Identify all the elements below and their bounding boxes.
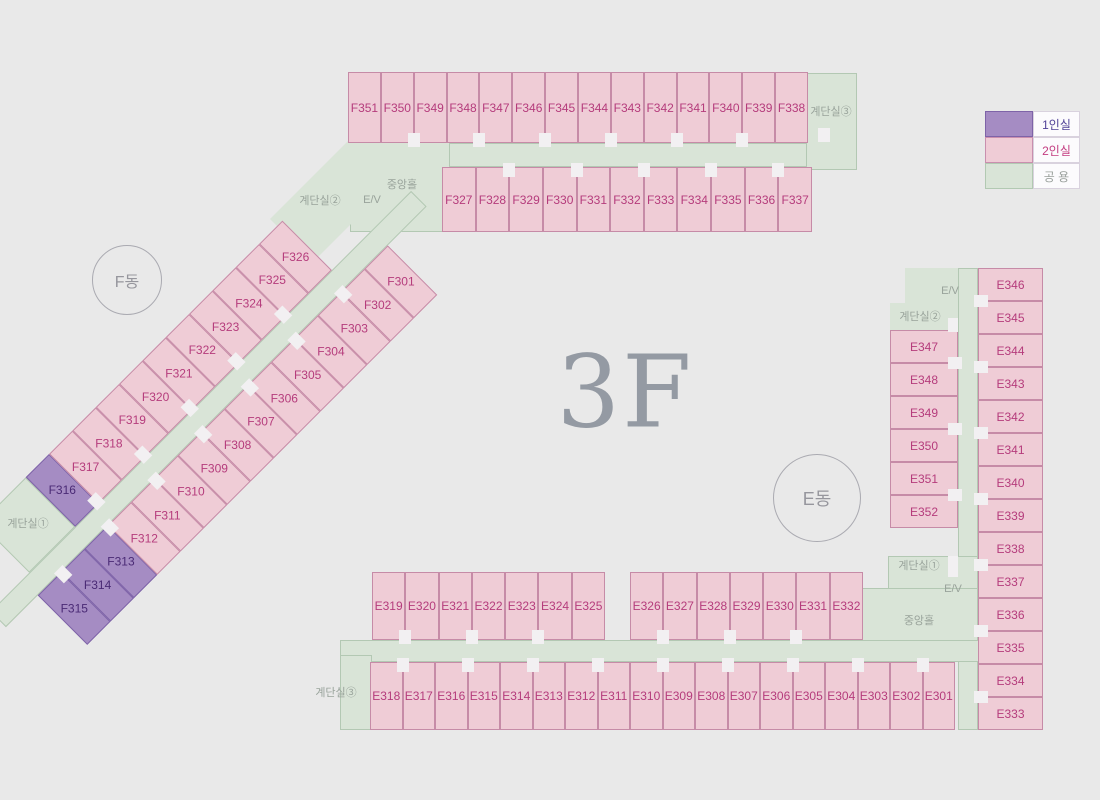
room-label: F305	[294, 368, 321, 382]
room-label: E306	[762, 689, 790, 703]
room-label: E341	[996, 443, 1024, 457]
door-notch	[473, 133, 485, 147]
room-label: F319	[118, 413, 145, 427]
floor-plan-3f: F316F317F318F319F320F321F322F323F324F325…	[0, 0, 1100, 800]
room-label: E345	[996, 311, 1024, 325]
room-label: E309	[665, 689, 693, 703]
room-label: F301	[387, 275, 414, 289]
room-label: F309	[200, 461, 227, 475]
door-notch	[974, 625, 988, 637]
room-label: E310	[632, 689, 660, 703]
room-label: F343	[614, 101, 641, 115]
room-label: F346	[515, 101, 542, 115]
room-label: E342	[996, 410, 1024, 424]
room-label: F334	[681, 193, 708, 207]
room-label: E328	[699, 599, 727, 613]
room-label: F303	[340, 321, 367, 335]
room-e304: E304	[825, 662, 858, 730]
room-label: F314	[84, 578, 111, 592]
room-label: F312	[130, 531, 157, 545]
room-label: E325	[574, 599, 602, 613]
room-label: E307	[730, 689, 758, 703]
room-label: E329	[732, 599, 760, 613]
room-label: F313	[107, 555, 134, 569]
room-label: F304	[317, 345, 344, 359]
room-label: F330	[546, 193, 573, 207]
room-label: F340	[712, 101, 739, 115]
room-label: F308	[224, 438, 251, 452]
room-label: F323	[212, 320, 239, 334]
room-label: E323	[508, 599, 536, 613]
legend-row-single: 1인실	[985, 111, 1080, 137]
room-f351: F351	[348, 72, 381, 143]
room-label: F351	[351, 101, 378, 115]
room-label: E352	[910, 505, 938, 519]
room-e303: E303	[858, 662, 891, 730]
door-notch	[974, 559, 988, 571]
room-label: F337	[781, 193, 808, 207]
room-label: F325	[258, 273, 285, 287]
room-e312: E312	[565, 662, 598, 730]
door-notch	[787, 658, 799, 672]
room-label: F349	[416, 101, 443, 115]
wall-opening	[948, 318, 958, 332]
room-label: E346	[996, 278, 1024, 292]
room-label: F338	[778, 101, 805, 115]
room-label: F320	[142, 390, 169, 404]
door-notch	[974, 295, 988, 307]
door-notch	[657, 658, 669, 672]
room-label: F339	[745, 101, 772, 115]
building-badge-f: F동	[92, 245, 162, 315]
room-label: F327	[445, 193, 472, 207]
label-stair-2-f: 계단실②	[299, 192, 340, 208]
door-notch	[974, 493, 988, 505]
door-notch	[671, 133, 683, 147]
room-label: E336	[996, 608, 1024, 622]
legend-label-single: 1인실	[1033, 111, 1080, 137]
door-notch	[852, 658, 864, 672]
room-e310: E310	[630, 662, 663, 730]
room-label: F324	[235, 297, 262, 311]
room-label: F344	[581, 101, 608, 115]
legend-swatch-common	[985, 163, 1033, 189]
door-notch	[948, 423, 962, 435]
room-label: E303	[860, 689, 888, 703]
room-label: E332	[832, 599, 860, 613]
door-notch	[527, 658, 539, 672]
door-notch	[503, 163, 515, 177]
room-e332: E332	[830, 572, 863, 640]
room-label: F326	[282, 250, 309, 264]
room-label: F328	[479, 193, 506, 207]
stair-3-f-area	[806, 73, 857, 170]
door-notch	[571, 163, 583, 177]
room-label: F307	[247, 415, 274, 429]
room-label: E320	[408, 599, 436, 613]
door-notch	[532, 630, 544, 644]
door-notch	[948, 489, 962, 501]
label-jungang-hall-e: 중앙홀	[904, 612, 934, 628]
room-label: F315	[60, 601, 87, 615]
room-label: E319	[375, 599, 403, 613]
room-label: E321	[441, 599, 469, 613]
room-label: E339	[996, 509, 1024, 523]
door-notch	[397, 658, 409, 672]
room-e308: E308	[695, 662, 728, 730]
room-e306: E306	[760, 662, 793, 730]
room-e316: E316	[435, 662, 468, 730]
room-label: E348	[910, 373, 938, 387]
room-label: F317	[72, 460, 99, 474]
room-label: F341	[679, 101, 706, 115]
corridor-f-diagonal	[0, 191, 427, 627]
room-label: F322	[188, 343, 215, 357]
room-e305: E305	[793, 662, 826, 730]
door-notch	[605, 133, 617, 147]
room-label: E315	[470, 689, 498, 703]
room-label: E335	[996, 641, 1024, 655]
label-stair-3-f: 계단실③	[810, 103, 851, 119]
legend-row-common: 공 용	[985, 163, 1080, 189]
door-notch	[462, 658, 474, 672]
room-e325: E325	[572, 572, 605, 640]
room-label: E308	[697, 689, 725, 703]
room-f338: F338	[775, 72, 808, 143]
label-stair-1-f: 계단실①	[7, 515, 48, 531]
room-e307: E307	[728, 662, 761, 730]
door-notch	[638, 163, 650, 177]
room-label: F329	[512, 193, 539, 207]
door-notch	[790, 630, 802, 644]
room-label: E334	[996, 674, 1024, 688]
room-label: E316	[437, 689, 465, 703]
door-notch	[948, 357, 962, 369]
door-notch	[539, 133, 551, 147]
room-e301: E301	[923, 662, 956, 730]
room-label: E327	[666, 599, 694, 613]
door-notch	[974, 361, 988, 373]
room-label: F350	[384, 101, 411, 115]
room-label: E322	[474, 599, 502, 613]
room-label: E314	[502, 689, 530, 703]
room-label: F302	[364, 298, 391, 312]
room-e302: E302	[890, 662, 923, 730]
room-f327: F327	[442, 167, 476, 232]
room-label: F345	[548, 101, 575, 115]
room-label: F318	[95, 437, 122, 451]
room-label: E344	[996, 344, 1024, 358]
label-stair-1-e: 계단실①	[898, 557, 939, 573]
room-label: E347	[910, 340, 938, 354]
room-label: E330	[766, 599, 794, 613]
room-label: E311	[600, 689, 627, 703]
door-notch	[408, 133, 420, 147]
room-e313: E313	[533, 662, 566, 730]
label-stair-2-e: 계단실②	[899, 308, 940, 324]
label-elevator-e-bottom: E/V	[944, 583, 962, 595]
room-label: F321	[165, 367, 192, 381]
room-label: E350	[910, 439, 938, 453]
door-notch	[772, 163, 784, 177]
room-label: E349	[910, 406, 938, 420]
door-notch	[724, 630, 736, 644]
room-label: E312	[567, 689, 595, 703]
room-label: F342	[646, 101, 673, 115]
wall-opening	[818, 128, 830, 142]
room-e309: E309	[663, 662, 696, 730]
room-e317: E317	[403, 662, 436, 730]
room-label: F331	[580, 193, 607, 207]
door-notch	[657, 630, 669, 644]
room-label: E340	[996, 476, 1024, 490]
room-label: F333	[647, 193, 674, 207]
building-badge-e: E동	[773, 454, 861, 542]
legend: 1인실 2인실 공 용	[985, 111, 1080, 189]
door-notch	[399, 630, 411, 644]
room-label: E326	[633, 599, 661, 613]
room-label: E302	[892, 689, 920, 703]
label-elevator-e-top: E/V	[941, 285, 959, 297]
room-label: E338	[996, 542, 1024, 556]
room-label: E343	[996, 377, 1024, 391]
room-label: E313	[535, 689, 563, 703]
room-label: E304	[827, 689, 855, 703]
label-elevator-f: E/V	[363, 194, 381, 206]
door-notch	[974, 691, 988, 703]
room-e315: E315	[468, 662, 501, 730]
room-e314: E314	[500, 662, 533, 730]
door-notch	[722, 658, 734, 672]
room-label: E301	[925, 689, 953, 703]
label-stair-3-e: 계단실③	[315, 684, 356, 700]
room-label: E337	[996, 575, 1024, 589]
door-notch	[736, 133, 748, 147]
door-notch	[705, 163, 717, 177]
room-label: F306	[270, 391, 297, 405]
room-label: F316	[48, 483, 75, 497]
room-label: F336	[748, 193, 775, 207]
room-label: E333	[996, 707, 1024, 721]
room-label: F348	[449, 101, 476, 115]
room-e318: E318	[370, 662, 403, 730]
wall-opening	[948, 556, 958, 577]
room-label: E351	[910, 472, 938, 486]
door-notch	[466, 630, 478, 644]
door-notch	[974, 427, 988, 439]
legend-label-common: 공 용	[1033, 163, 1080, 189]
room-label: E324	[541, 599, 569, 613]
door-notch	[917, 658, 929, 672]
legend-swatch-double	[985, 137, 1033, 163]
room-label: F347	[482, 101, 509, 115]
room-label: F311	[154, 508, 180, 522]
room-label: E305	[795, 689, 823, 703]
room-e311: E311	[598, 662, 631, 730]
room-label: E331	[799, 599, 827, 613]
room-label: E317	[405, 689, 433, 703]
legend-swatch-single	[985, 111, 1033, 137]
legend-label-double: 2인실	[1033, 137, 1080, 163]
room-label: F332	[613, 193, 640, 207]
floor-title: 3F	[556, 334, 693, 451]
door-notch	[592, 658, 604, 672]
room-label: E318	[372, 689, 400, 703]
label-jungang-hall-f: 중앙홀	[387, 176, 417, 192]
room-label: F335	[714, 193, 741, 207]
room-label: F310	[177, 485, 204, 499]
legend-row-double: 2인실	[985, 137, 1080, 163]
